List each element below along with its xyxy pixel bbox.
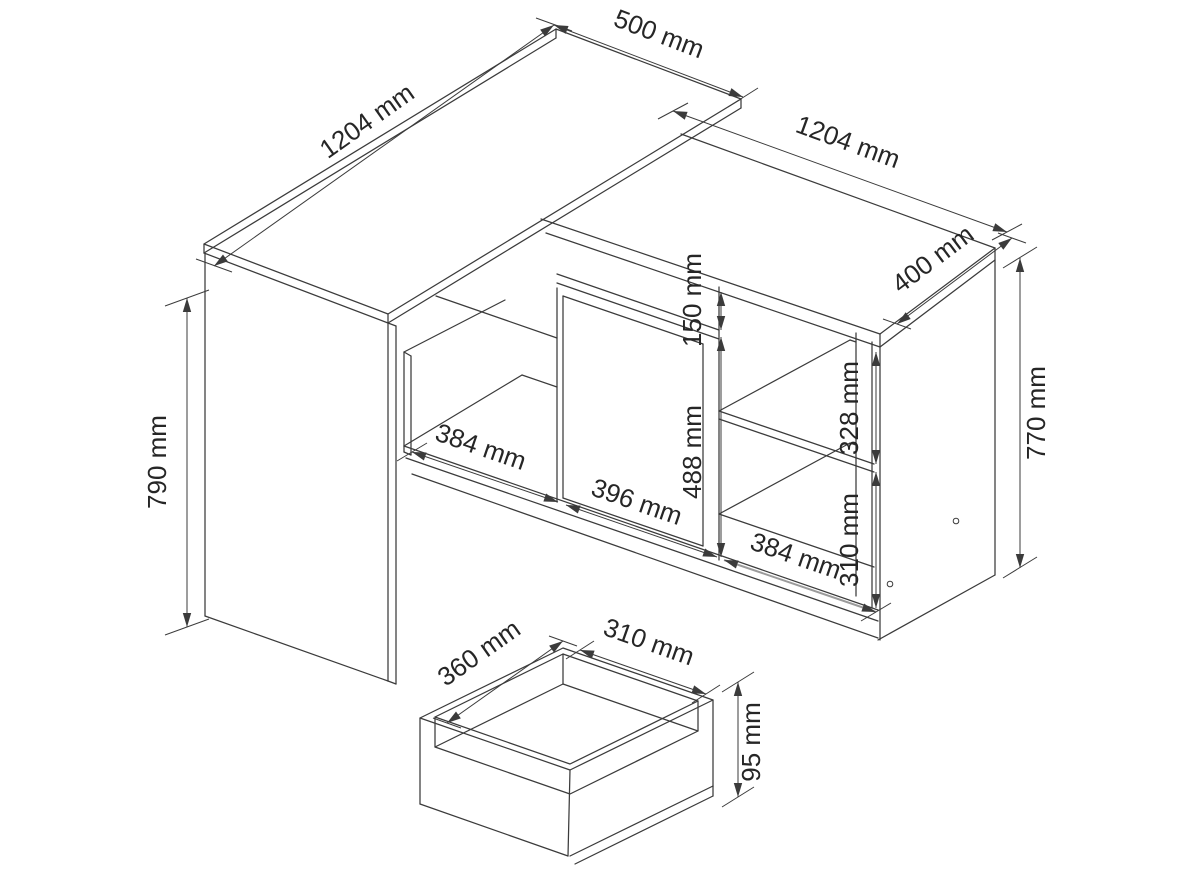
niche-ceiling-front-edge <box>436 296 557 338</box>
cam-lock-hole-lower <box>887 581 893 587</box>
dimension-arrowhead <box>412 452 427 461</box>
dim-desk-top-depth: 500 mm <box>554 3 758 107</box>
dim-label-drawer-front-height: 150 mm <box>677 253 707 347</box>
dim-desk-top-length: 1204 mm <box>196 18 572 272</box>
dim-label-door-width: 396 mm <box>588 472 687 531</box>
dim-desk-height: 790 mm <box>142 290 209 635</box>
dim-cabinet-depth: 400 mm <box>883 219 1026 329</box>
dimension-arrowhead <box>566 505 581 514</box>
dimension-arrowhead <box>183 613 191 627</box>
dim-drawer-box-depth: 360 mm <box>432 613 577 728</box>
niche-left-wall-top-tick <box>404 352 411 356</box>
cabinet-top-slab-bottom-edge <box>546 233 880 347</box>
dim-drawer-front-height: 150 mm <box>677 253 725 347</box>
dim-label-upper-shelf-opening: 328 mm <box>834 361 864 455</box>
dim-label-cabinet-length: 1204 mm <box>792 109 904 174</box>
shelf-bottom-depth-edge <box>719 443 850 514</box>
desk-side-panel <box>205 253 396 684</box>
niche-ceiling-depth-edge <box>404 300 505 352</box>
dimension-arrowhead <box>728 88 743 97</box>
cabinet <box>404 134 995 640</box>
drawer-bottom-band-edge <box>575 796 713 864</box>
cam-lock-hole-upper <box>953 518 959 524</box>
technical-drawing-page: 1204 mm 500 mm 790 mm 1204 mm 400 mm <box>0 0 1200 887</box>
dimension-arrowhead <box>724 560 739 569</box>
dimension-arrowhead <box>691 685 706 694</box>
dimension-arrowhead <box>897 312 911 324</box>
shelf-top-depth-edge <box>719 340 850 411</box>
dimension-arrowhead <box>872 450 880 464</box>
dimension-arrowhead <box>1016 258 1024 272</box>
dimensions: 1204 mm 500 mm 790 mm 1204 mm 400 mm <box>142 3 1051 807</box>
dim-label-right-section-width: 384 mm <box>747 526 846 585</box>
dimension-arrowhead <box>992 223 1007 232</box>
dim-cabinet-height: 770 mm <box>1003 247 1051 578</box>
shelf-top-back-segment <box>850 340 856 342</box>
dim-upper-shelf-opening: 328 mm <box>834 352 880 464</box>
dim-cabinet-length: 1204 mm <box>658 103 1022 240</box>
dim-label-cabinet-depth: 400 mm <box>886 219 979 299</box>
drawer-right-bottom-edge <box>570 786 713 856</box>
desk-top <box>204 29 741 323</box>
side-panel-band-bottom-tick <box>388 681 396 684</box>
dimension-arrowhead <box>183 298 191 312</box>
side-panel-band-top-tick <box>388 323 396 326</box>
dim-label-door-height: 488 mm <box>677 405 707 499</box>
dimension-arrowhead <box>872 594 880 608</box>
dim-label-drawer-box-height: 95 mm <box>736 702 766 781</box>
dimension-arrowhead <box>998 238 1012 250</box>
desk-top-thickness-left-band <box>204 38 556 253</box>
dim-left-niche-width: 384 mm <box>397 417 558 502</box>
cabinet-bottom-outer-edge <box>406 458 878 621</box>
dimension-arrowhead <box>214 254 228 266</box>
dim-right-section-width: 384 mm <box>724 526 891 621</box>
dim-label-desk-length: 1204 mm <box>314 77 420 164</box>
drawer-front-bottom-edge <box>420 804 568 856</box>
cabinet-bottom-back-edge <box>878 575 995 640</box>
dimension-arrowhead <box>673 111 688 120</box>
niche-back-bottom-edge <box>522 375 557 387</box>
drawer-interior-bottom <box>435 684 698 794</box>
furniture-dimension-diagram: 1204 mm 500 mm 790 mm 1204 mm 400 mm <box>0 0 1200 887</box>
cabinet-top-front-edge <box>541 219 880 334</box>
dim-door-height: 488 mm <box>677 337 725 557</box>
dim-drawer-box-height: 95 mm <box>722 672 766 807</box>
dim-label-desk-height: 790 mm <box>142 415 172 509</box>
dimension-arrowhead <box>717 316 725 330</box>
cabinet-bottom-slab-top-edge <box>404 446 878 610</box>
desk-top-thickness-front-band <box>204 253 388 323</box>
dimension-arrowhead <box>872 352 880 366</box>
drawer-front-right-edge <box>568 770 570 856</box>
dimension-arrowhead <box>872 472 880 486</box>
dim-lower-shelf-opening: 310 mm <box>834 472 880 608</box>
dim-label-cabinet-height: 770 mm <box>1021 366 1051 460</box>
dim-label-drawer-box-depth: 360 mm <box>432 613 526 692</box>
side-panel-bottom-edge <box>205 616 388 681</box>
dim-label-left-niche-width: 384 mm <box>432 417 531 476</box>
dimension-arrowhead <box>447 711 461 723</box>
